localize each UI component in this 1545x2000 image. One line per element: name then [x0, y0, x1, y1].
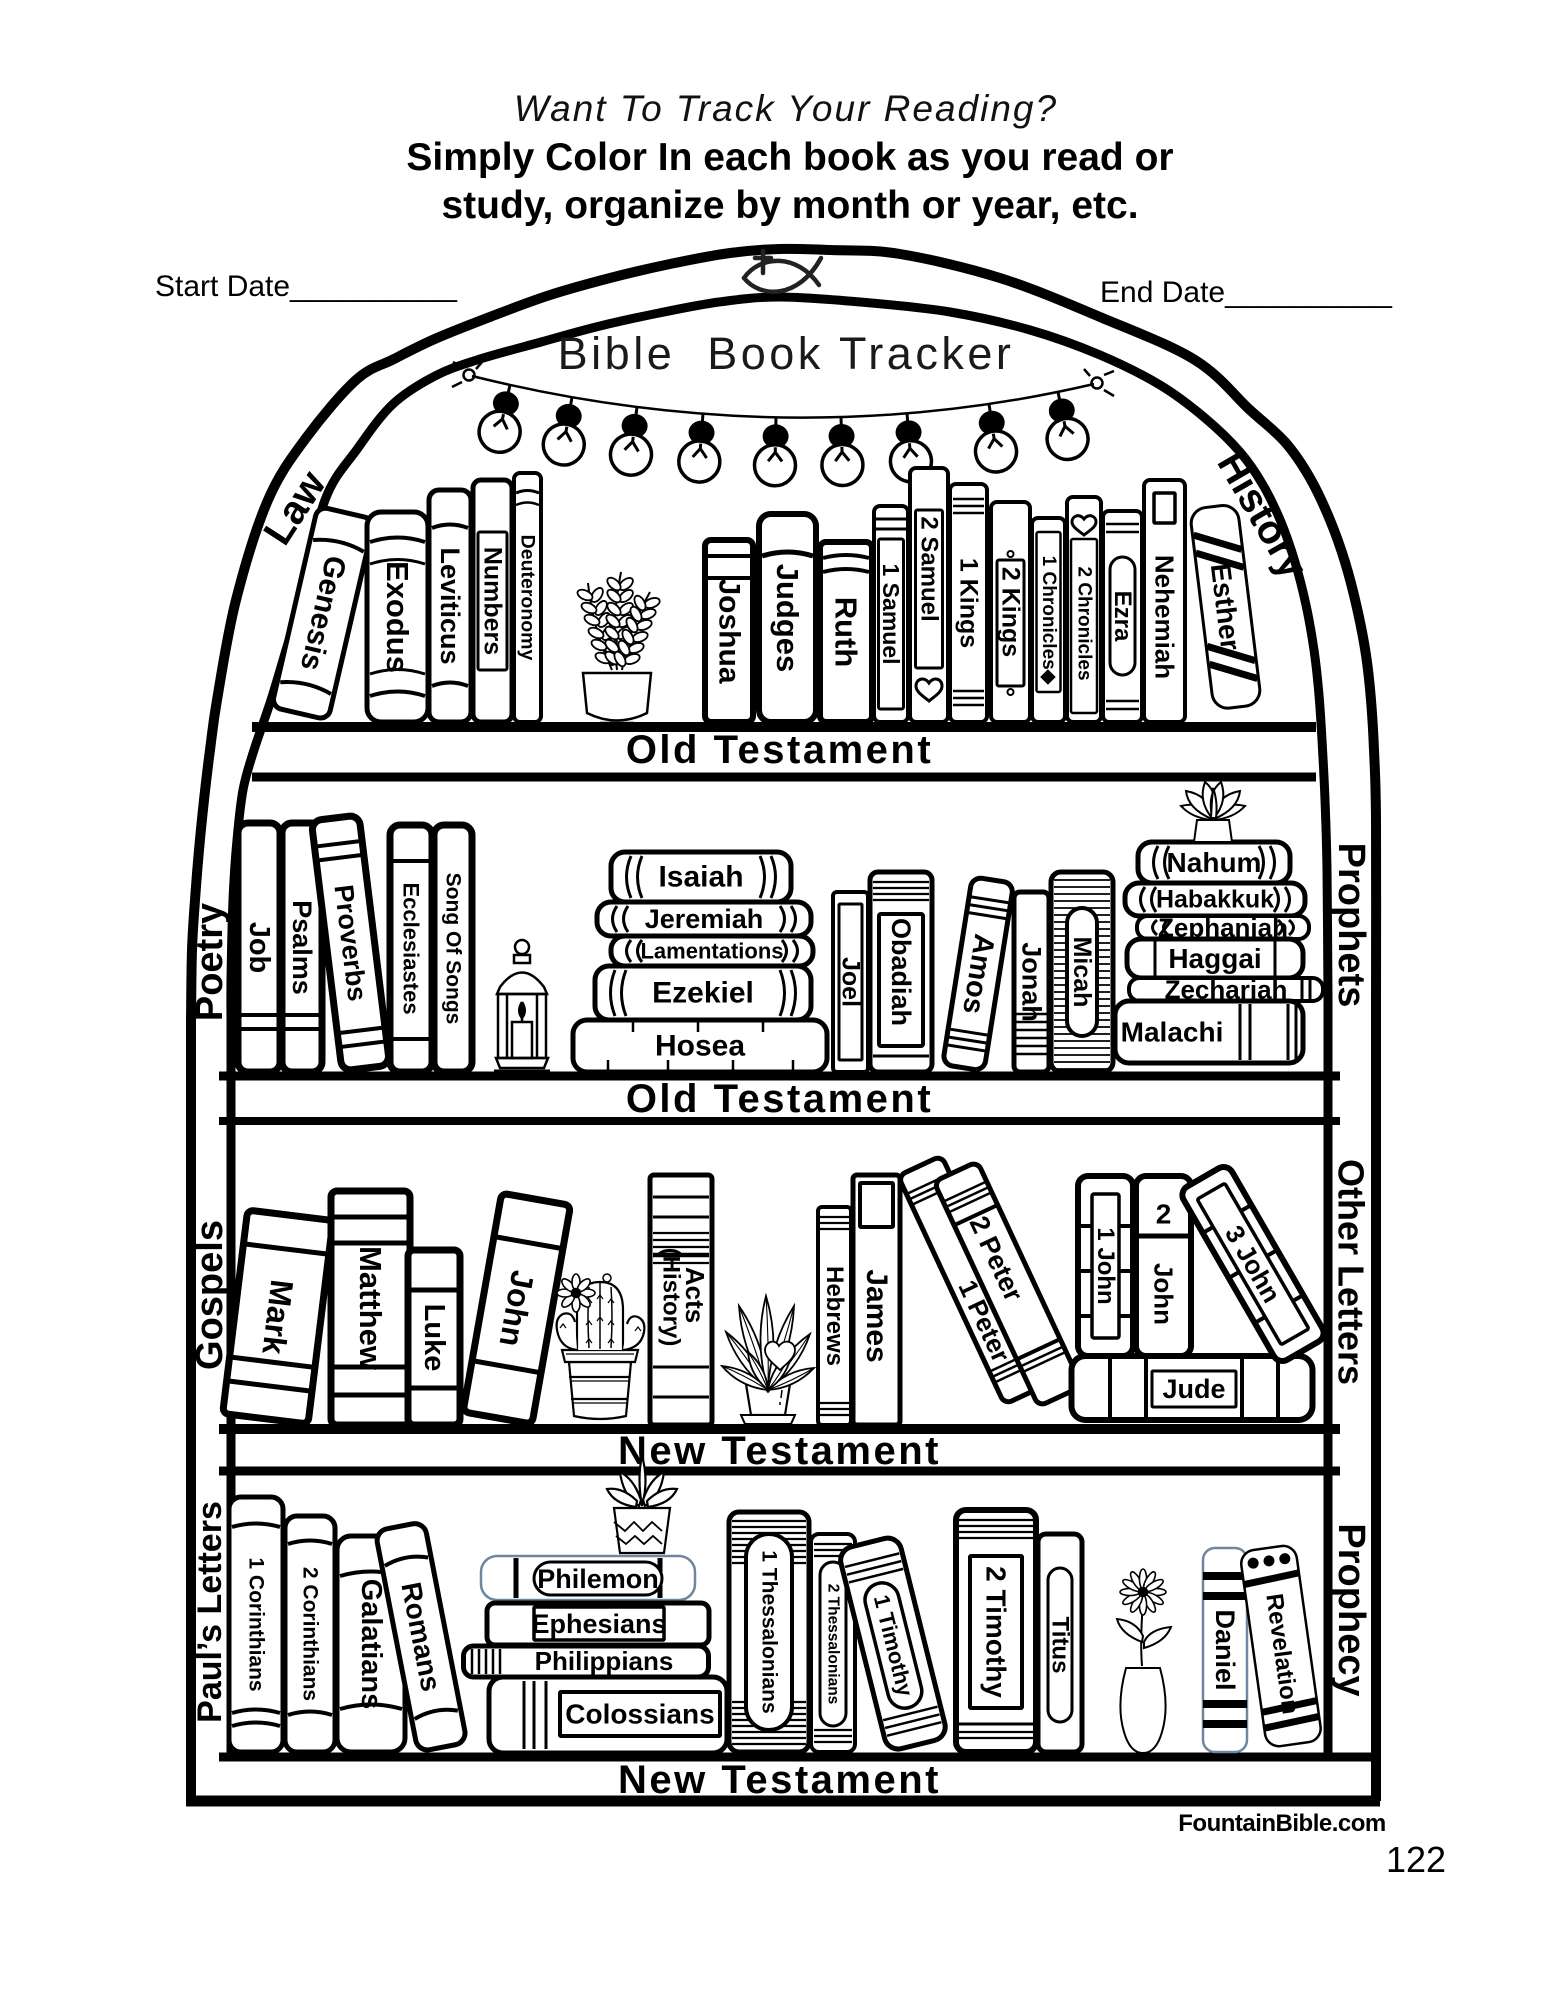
svg-text:Exodus: Exodus: [380, 561, 415, 673]
svg-text:1 John: 1 John: [1092, 1227, 1119, 1304]
svg-text:Isaiah: Isaiah: [658, 861, 743, 894]
svg-text:Hosea: Hosea: [655, 1030, 745, 1063]
svg-text:Bible Book Tracker: Bible Book Tracker: [558, 328, 1015, 379]
svg-text:1 Chronicles◆: 1 Chronicles◆: [1038, 556, 1059, 686]
svg-text:2 Thessalonians: 2 Thessalonians: [825, 1584, 842, 1705]
svg-text:Galatians: Galatians: [355, 1579, 387, 1710]
svg-text:122: 122: [1386, 1839, 1446, 1880]
svg-text:Daniel: Daniel: [1210, 1609, 1240, 1690]
svg-text:FountainBible.com: FountainBible.com: [1178, 1810, 1386, 1837]
svg-text:1 Corinthians: 1 Corinthians: [245, 1557, 268, 1691]
svg-text:Joshua: Joshua: [713, 578, 746, 683]
svg-text:Nahum: Nahum: [1167, 847, 1262, 878]
svg-text:Prophets: Prophets: [1330, 843, 1372, 1008]
svg-text:1 Kings: 1 Kings: [955, 558, 983, 648]
svg-text:Lamentations: Lamentations: [640, 939, 783, 964]
svg-text:Colossians: Colossians: [565, 1699, 714, 1730]
svg-text:Ecclesiastes: Ecclesiastes: [399, 882, 424, 1014]
svg-text:Ephesians: Ephesians: [531, 1609, 666, 1639]
svg-text:Old Testament: Old Testament: [626, 1077, 933, 1121]
svg-text:2: 2: [1156, 1199, 1172, 1230]
svg-text:Start Date__________: Start Date__________: [155, 270, 458, 303]
svg-text:Haggai: Haggai: [1168, 943, 1261, 974]
svg-text:Titus: Titus: [1047, 1617, 1074, 1674]
svg-text:Philemon: Philemon: [537, 1564, 659, 1594]
svg-text:Old Testament: Old Testament: [626, 728, 933, 772]
svg-text:Micah: Micah: [1068, 937, 1096, 1008]
svg-text:New Testament: New Testament: [618, 1429, 941, 1473]
svg-text:2 Samuel: 2 Samuel: [916, 516, 943, 621]
svg-text:Poetry: Poetry: [189, 903, 231, 1021]
svg-text:2 Corinthians: 2 Corinthians: [299, 1567, 322, 1701]
svg-text:study, organize by month or ye: study, organize by month or year, etc.: [441, 184, 1138, 227]
svg-text:2 Chronicles: 2 Chronicles: [1074, 566, 1095, 680]
svg-text:1 Samuel: 1 Samuel: [878, 564, 904, 665]
svg-text:Jeremiah: Jeremiah: [645, 904, 764, 934]
svg-text:Acts: Acts: [680, 1267, 710, 1323]
svg-text:Ezekiel: Ezekiel: [652, 977, 754, 1010]
svg-text:Leviticus: Leviticus: [435, 547, 465, 664]
svg-text:2 Timothy: 2 Timothy: [981, 1566, 1012, 1698]
svg-text:Ruth: Ruth: [829, 597, 864, 668]
svg-text:Judges: Judges: [770, 564, 805, 673]
svg-text:Philippians: Philippians: [535, 1646, 674, 1676]
svg-text:Luke: Luke: [418, 1304, 450, 1372]
svg-text:Song Of Songs: Song Of Songs: [442, 873, 465, 1025]
svg-text:Hebrews: Hebrews: [821, 1266, 848, 1366]
svg-text:Other Letters: Other Letters: [1331, 1159, 1372, 1385]
svg-text:Matthew: Matthew: [353, 1246, 388, 1371]
svg-text:Malachi: Malachi: [1121, 1017, 1224, 1048]
svg-text:Jude: Jude: [1162, 1374, 1225, 1404]
svg-text:Psalms: Psalms: [287, 900, 317, 995]
svg-text:New Testament: New Testament: [618, 1758, 941, 1802]
svg-text:1 Thessalonians: 1 Thessalonians: [758, 1550, 781, 1713]
svg-text:Ezra: Ezra: [1109, 591, 1136, 642]
svg-text:Habakkuk: Habakkuk: [1156, 886, 1274, 914]
svg-text:Gospels: Gospels: [189, 1220, 231, 1370]
svg-text:Jonah: Jonah: [1017, 942, 1047, 1022]
svg-text:Simply Color In each book as y: Simply Color In each book as you read or: [406, 136, 1173, 179]
svg-text:Job: Job: [243, 922, 275, 974]
svg-text:Joel: Joel: [837, 957, 865, 1007]
svg-text:2 Kings: 2 Kings: [997, 567, 1025, 657]
svg-text:Deuteronomy: Deuteronomy: [517, 535, 539, 661]
svg-text:Nehemiah: Nehemiah: [1150, 555, 1180, 679]
svg-text:Want To Track Your Reading?: Want To Track Your Reading?: [514, 88, 1058, 129]
svg-text:Numbers: Numbers: [479, 547, 507, 655]
svg-text:Paul’s Letters: Paul’s Letters: [191, 1501, 229, 1723]
svg-text:Obadiah: Obadiah: [886, 918, 916, 1026]
svg-text:James: James: [860, 1269, 893, 1362]
svg-text:John: John: [1149, 1263, 1179, 1325]
svg-text:End Date__________: End Date__________: [1100, 276, 1393, 309]
svg-text:Prophecy: Prophecy: [1330, 1523, 1372, 1696]
